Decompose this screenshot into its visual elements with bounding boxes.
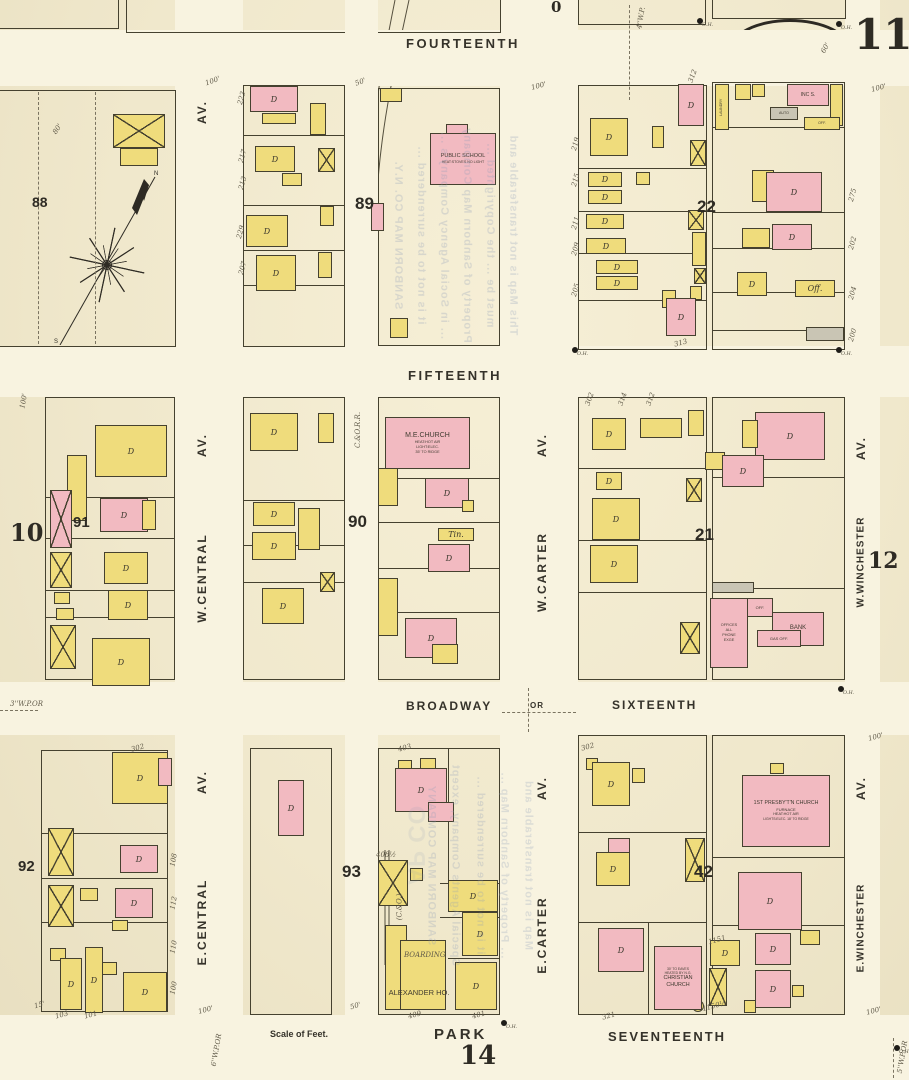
building: D xyxy=(586,214,624,229)
building: Off. xyxy=(795,280,835,297)
building: Tin. xyxy=(438,528,474,541)
block-number: 92 xyxy=(18,858,35,875)
block-number: 89 xyxy=(355,194,374,214)
landmark-label: 35' TO RIDGE xyxy=(415,450,439,455)
building xyxy=(692,232,706,266)
parcel-line xyxy=(712,0,713,19)
hydrant-dot: O.H. xyxy=(572,347,578,353)
parcel-line xyxy=(378,32,500,33)
hydrant-dot: O.H. xyxy=(836,21,842,27)
building xyxy=(320,572,335,592)
landmark-label: M.E.CHURCH xyxy=(405,431,450,440)
building: D xyxy=(755,970,791,1008)
building: D xyxy=(590,118,628,156)
landmark-me-church: M.E.CHURCHHEAT:HOT AIRLIGHT:ELEC.35' TO … xyxy=(385,417,470,469)
hydrant-dot: O.H. xyxy=(894,1045,900,1051)
block-number: 93 xyxy=(342,862,361,882)
block-number: 11 xyxy=(854,10,909,59)
hydrant-label: O.H. xyxy=(841,25,852,31)
street-label-vertical: AV. xyxy=(854,776,868,800)
property-dash xyxy=(38,92,39,344)
building xyxy=(318,413,334,443)
parcel-line xyxy=(578,468,707,469)
building xyxy=(56,608,74,620)
hydrant-label: O.H. xyxy=(506,1024,517,1030)
building: D xyxy=(586,238,626,254)
building: D xyxy=(256,255,296,291)
street-label: OR xyxy=(530,701,544,710)
building xyxy=(378,468,398,506)
watermark-line: Property of Sanborn Map Company xyxy=(455,115,478,355)
building xyxy=(380,88,402,102)
block-number: 88 xyxy=(32,194,48,210)
street-label-vertical: W.CENTRAL xyxy=(195,533,209,622)
parcel-line xyxy=(648,922,649,1015)
street-label-vertical: E.CENTRAL xyxy=(195,879,209,966)
building: D xyxy=(766,172,822,212)
building xyxy=(712,582,754,593)
street-band xyxy=(175,0,243,1080)
building xyxy=(462,500,474,512)
building: D xyxy=(428,544,470,572)
building xyxy=(378,578,398,636)
building xyxy=(50,625,76,669)
parcel-line xyxy=(243,500,345,501)
landmark-label: INC S. xyxy=(801,92,816,99)
building: D xyxy=(250,413,298,451)
landmark-office: OFF. xyxy=(747,598,773,617)
parcel-line xyxy=(41,878,168,879)
stamp-watermark: This Map is not transferable andmust be … xyxy=(386,115,525,355)
landmark-label: LIGHTS:ELEC. 18' TO RIDGE xyxy=(763,817,809,821)
street-label-vertical: AV. xyxy=(195,433,209,457)
building xyxy=(800,930,820,945)
street-label: BROADWAY xyxy=(406,699,492,713)
building: D xyxy=(596,276,638,290)
lot-annotation: 100' xyxy=(18,393,29,409)
landmark-label: LAUNDRY xyxy=(720,98,725,115)
building: D xyxy=(592,762,630,806)
parcel-line xyxy=(118,0,119,29)
watermark-line: must be ... the Copyrighted ... xyxy=(478,115,501,355)
building xyxy=(112,920,128,931)
stamp-watermark: AP CO xyxy=(401,785,430,905)
building xyxy=(318,148,335,172)
building xyxy=(158,758,172,786)
building xyxy=(320,206,334,226)
lot-annotation: C.&O.R.R. xyxy=(354,412,362,448)
watermark-line: Special Agents Company, except xyxy=(444,735,468,995)
street-label: FIFTEENTH xyxy=(408,368,502,383)
parcel-line xyxy=(578,540,707,541)
watermark-line: ... Property of Sanborn Map ... xyxy=(492,735,516,995)
building: D xyxy=(755,412,825,460)
building: D xyxy=(60,958,82,1010)
building xyxy=(652,126,664,148)
building: D xyxy=(95,425,167,477)
watermark-line: Map is not transferable and xyxy=(516,735,540,995)
parcel-line xyxy=(578,592,707,593)
landmark-christian-church: 30' TO EAVESHEATED BY N.G.CHRISTIANCHURC… xyxy=(654,946,702,1010)
building: D xyxy=(104,552,148,584)
block-number: 42 xyxy=(694,862,713,882)
building: D xyxy=(596,472,622,490)
building: D xyxy=(278,780,304,836)
building xyxy=(318,252,332,278)
parcel-line xyxy=(578,0,579,25)
building xyxy=(806,327,844,341)
parcel-line xyxy=(578,168,707,169)
building: D xyxy=(92,638,150,686)
building: D xyxy=(592,498,640,540)
hydrant-dot: O.H. xyxy=(697,18,703,24)
block-number: 90 xyxy=(348,512,367,532)
landmark-label: OFF. xyxy=(756,605,765,610)
landmark-label: EXGE xyxy=(724,638,735,643)
landmark-label: CHURCH xyxy=(666,982,689,989)
building: D xyxy=(722,455,764,487)
street-label-vertical: W.CARTER xyxy=(535,532,549,612)
watermark-line: it is not to be surrendered ... xyxy=(468,735,492,995)
landmark-phone-exchange: OFFICESALLPHONEEXGE xyxy=(710,598,748,668)
street-label-vertical: W.WINCHESTER xyxy=(856,517,867,608)
block-number: 91 xyxy=(73,514,90,531)
compass-south-label: S xyxy=(54,339,58,345)
building: D xyxy=(590,545,638,583)
landmark-label: CHRISTIAN xyxy=(663,975,692,982)
building xyxy=(50,490,72,548)
building: D xyxy=(108,590,148,620)
building: D xyxy=(755,933,791,965)
hydrant-label: O.H. xyxy=(841,351,852,357)
building: D xyxy=(737,272,767,296)
block-number: 14 xyxy=(460,1041,496,1071)
building: D xyxy=(678,84,704,126)
building: D xyxy=(738,872,802,930)
landmark-gas-office: GAS OFF. xyxy=(757,630,801,647)
building: D xyxy=(255,146,295,172)
lot-annotation: 408½ xyxy=(376,851,396,859)
lot-annotation: 3''W.P.OR xyxy=(10,700,43,708)
building xyxy=(636,172,650,185)
building: D xyxy=(115,888,153,918)
hydrant-label: O.H. xyxy=(702,22,713,28)
building: D xyxy=(596,852,630,886)
watermark-line: it is not to be surrendered ... xyxy=(409,115,432,355)
landmark-label: 1ST PRESBY'T'N CHURCH xyxy=(754,800,819,807)
building xyxy=(688,410,704,436)
property-dash xyxy=(0,710,38,711)
block-number: 21 xyxy=(695,525,714,545)
block-number: 0 xyxy=(551,0,561,16)
hydrant-dot: O.H. xyxy=(838,686,844,692)
building xyxy=(262,113,296,124)
street-label-vertical: E.WINCHESTER xyxy=(856,884,867,973)
watermark-line: SANBORN MAP CO. N.Y. xyxy=(386,115,409,355)
building xyxy=(742,228,770,248)
street-label: SIXTEENTH xyxy=(612,698,697,712)
hydrant-dot: O.H. xyxy=(501,1020,507,1026)
building xyxy=(282,173,302,186)
building xyxy=(80,888,98,901)
building xyxy=(102,962,117,975)
parcel-line xyxy=(578,922,707,923)
parcel-line xyxy=(845,0,846,19)
hydrant-label: O.H. xyxy=(899,1049,909,1055)
building xyxy=(310,103,326,135)
building: D xyxy=(123,972,167,1012)
building: D xyxy=(262,588,304,624)
property-dash xyxy=(893,1038,894,1078)
building xyxy=(142,500,156,530)
building: D xyxy=(246,215,288,247)
building xyxy=(298,508,320,550)
landmark-presbyterian-church: 1ST PRESBY'T'N CHURCHFURNACEHEAT:HOT AIR… xyxy=(742,775,830,847)
hydrant-dot: O.H. xyxy=(836,347,842,353)
building xyxy=(686,478,702,502)
landmark-laundry: LAUNDRY xyxy=(715,84,729,130)
landmark-auto-garage: AUTO xyxy=(770,107,798,120)
street-label-vertical: AV. xyxy=(195,100,209,124)
building xyxy=(50,552,72,588)
parcel-line xyxy=(126,32,345,33)
parcel-line xyxy=(126,0,127,33)
building xyxy=(120,148,158,166)
block-number: 12 xyxy=(868,548,899,574)
property-dash xyxy=(502,712,576,713)
building xyxy=(48,885,74,927)
building xyxy=(113,114,165,148)
property-dash xyxy=(629,5,630,100)
building xyxy=(432,644,458,664)
building: D xyxy=(252,532,296,560)
watermark-line: ... in Social Agency Company's ... xyxy=(432,115,455,355)
street-band xyxy=(0,1015,909,1080)
property-dash xyxy=(95,92,96,344)
building xyxy=(680,622,700,654)
building xyxy=(735,84,751,100)
building xyxy=(792,985,804,997)
landmark-label: AUTO xyxy=(779,111,789,116)
lot-annotation: 4''W.P. xyxy=(635,6,647,29)
building xyxy=(744,1000,756,1013)
parcel-line xyxy=(578,832,707,833)
street-band xyxy=(345,0,378,1080)
parcel-line xyxy=(500,0,501,33)
map-canvas: N S June 1907 ASHLAND KY. 50403020100501… xyxy=(0,0,909,1080)
building: D xyxy=(253,502,295,526)
parcel-line xyxy=(175,90,176,347)
compass-rose: N S xyxy=(52,145,177,345)
landmark-office-2: OFF. xyxy=(804,117,840,130)
street-label-vertical: AV. xyxy=(535,433,549,457)
building xyxy=(690,140,706,166)
building xyxy=(770,763,784,774)
building xyxy=(742,420,758,448)
parcel-line xyxy=(712,18,845,19)
landmark-label: OFF. xyxy=(818,121,826,126)
building xyxy=(54,592,70,604)
landmark-label: GAS OFF. xyxy=(770,636,788,641)
building xyxy=(632,768,645,783)
parcel-line xyxy=(243,135,345,136)
building: D xyxy=(598,928,644,972)
building xyxy=(752,84,765,97)
parcel-line xyxy=(378,522,500,523)
hydrant-label: O.H. xyxy=(577,351,588,357)
building xyxy=(694,268,706,284)
block-number: 10 xyxy=(10,518,43,547)
street-label: SEVENTEENTH xyxy=(608,1029,726,1044)
landmark-inc-s: INC S. xyxy=(787,84,829,106)
building: D xyxy=(250,86,298,112)
street-label: FOURTEENTH xyxy=(406,36,520,51)
building: D xyxy=(592,418,626,450)
lot-annotation: 80' xyxy=(51,122,64,135)
compass-north-label: N xyxy=(154,171,158,177)
block-number: 22 xyxy=(697,197,716,217)
parcel-line xyxy=(243,250,345,251)
building xyxy=(640,418,682,438)
parcel-line xyxy=(0,346,176,347)
building: D xyxy=(596,260,638,274)
hydrant-label: O.H. xyxy=(843,690,854,696)
street-label: Scale of Feet. xyxy=(270,1029,328,1039)
parcel-line xyxy=(0,90,176,91)
building: D xyxy=(588,172,622,187)
stamp-watermark: Map is not transferable and... Property … xyxy=(420,735,541,995)
building xyxy=(48,828,74,876)
watermark-line: This Map is not transferable and xyxy=(501,115,524,355)
parcel-line xyxy=(0,28,118,29)
building: D xyxy=(100,498,148,532)
building: D xyxy=(772,224,812,250)
building: D xyxy=(85,947,103,1013)
street-label-vertical: AV. xyxy=(195,770,209,794)
street-label-vertical: AV. xyxy=(854,436,868,460)
watermark-line: AP CO xyxy=(401,785,430,905)
building: D xyxy=(120,845,158,873)
building: D xyxy=(588,190,622,204)
building: D xyxy=(666,298,696,336)
parcel-line xyxy=(712,212,845,213)
parcel-line xyxy=(712,857,845,858)
property-dash xyxy=(528,688,529,732)
